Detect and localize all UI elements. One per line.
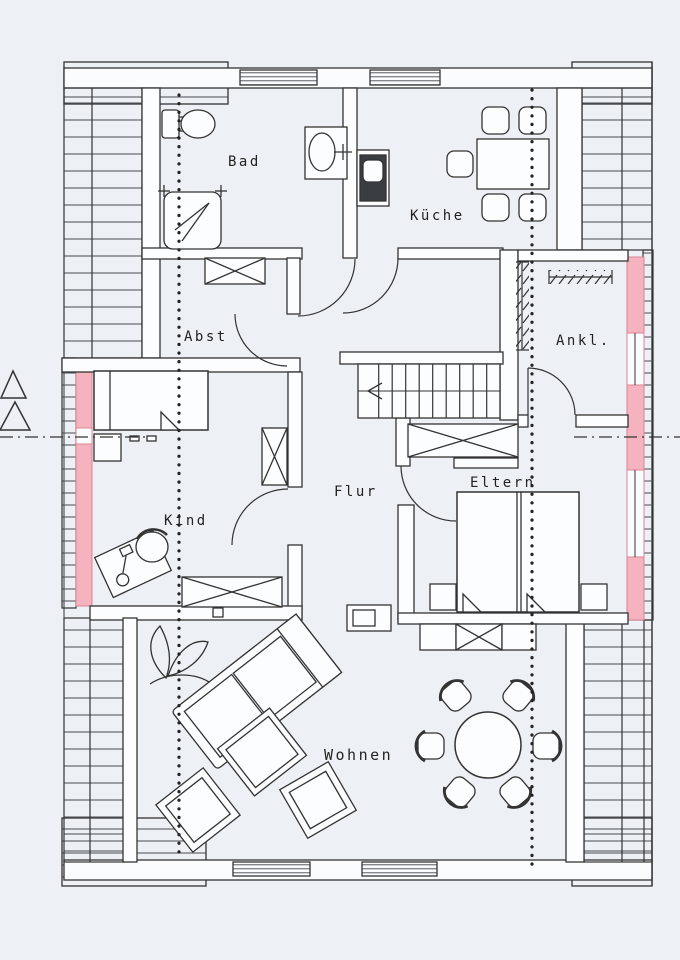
window-top-right: [370, 70, 440, 85]
wardrobe-rail-vertical: [516, 262, 529, 350]
stairs: [358, 364, 500, 418]
kitchen-chair: [519, 107, 546, 134]
bed-eltern: [457, 492, 579, 612]
cabinet-row-wohnen: [420, 624, 536, 650]
wall-abst-east: [287, 258, 300, 314]
wall-ankl-north: [518, 250, 628, 261]
floor-plan-sheet: Bad Küche Abst Ankl. Kind Flur Eltern Wo…: [0, 0, 680, 960]
small-item: [147, 436, 156, 441]
kitchen-sink-unit: [357, 150, 389, 206]
wall-ankl-south-b: [576, 415, 628, 427]
window-bottom-right: [362, 862, 437, 876]
roof-hatch-top-left: [64, 88, 142, 358]
kitchen-chair: [482, 107, 509, 134]
room-label-ankl: Ankl.: [556, 333, 611, 349]
room-label-kueche: Küche: [410, 208, 465, 224]
ladder-strip-left: [62, 358, 76, 608]
wall-wohnen-east: [566, 620, 584, 862]
wall-eltern-west: [398, 505, 414, 620]
knee-wall-left-window: [76, 428, 92, 444]
wall-stairs-north: [340, 352, 503, 364]
chimney-bad: [205, 258, 265, 284]
nightstand: [581, 584, 607, 610]
wall-stairwell-east: [500, 250, 518, 420]
washbasin: [305, 127, 352, 179]
wardrobe-rail-horizontal: [549, 270, 612, 284]
wall-bad-west: [142, 88, 160, 358]
wall-eltern-south: [398, 613, 628, 624]
roof-hatch-top-right: [582, 88, 652, 250]
floor-plan-drawing: Bad Küche Abst Ankl. Kind Flur Eltern Wo…: [0, 0, 680, 960]
kitchen-table: [477, 139, 549, 189]
roof-hatch-bottom-right: [584, 620, 652, 862]
wall-kueche-east: [557, 88, 582, 250]
outer-wall-top: [64, 68, 652, 88]
wall-eltern-north: [454, 458, 518, 468]
wardrobe-flur: [408, 424, 518, 457]
shower-tray: [158, 185, 227, 249]
kitchen-chair: [519, 194, 546, 221]
room-label-abst: Abst: [184, 329, 228, 345]
flue-marker: [213, 608, 223, 617]
room-label-kind: Kind: [164, 513, 208, 529]
knee-wall-left: [76, 358, 92, 606]
wall-wohnen-west: [123, 618, 137, 862]
wall-kueche-south: [398, 248, 503, 259]
bed-kind: [94, 371, 208, 430]
room-label-wohnen: Wohnen: [324, 746, 393, 764]
outer-wall-bottom: [64, 860, 652, 880]
nightstand: [94, 434, 121, 461]
wall-kind-east-upper: [288, 372, 302, 487]
nightstand: [430, 584, 456, 610]
room-label-eltern: Eltern: [470, 475, 536, 491]
kitchen-chair: [447, 151, 473, 177]
window-top-left: [240, 70, 317, 85]
toilet: [162, 110, 215, 138]
wall-kind-south: [90, 606, 302, 620]
wall-kind-north: [62, 358, 300, 372]
room-label-flur: Flur: [334, 484, 378, 500]
room-label-bad: Bad: [228, 154, 261, 170]
roof-hatch-bottom-left: [64, 618, 124, 862]
dining-table: [455, 712, 521, 778]
chimney-kind-flur: [262, 428, 287, 485]
kitchen-chair: [482, 194, 509, 221]
knee-wall-right: [627, 257, 644, 620]
wall-ankl-south-a: [518, 415, 528, 427]
wall-niche: [347, 605, 391, 631]
window-bottom-left: [233, 862, 310, 876]
